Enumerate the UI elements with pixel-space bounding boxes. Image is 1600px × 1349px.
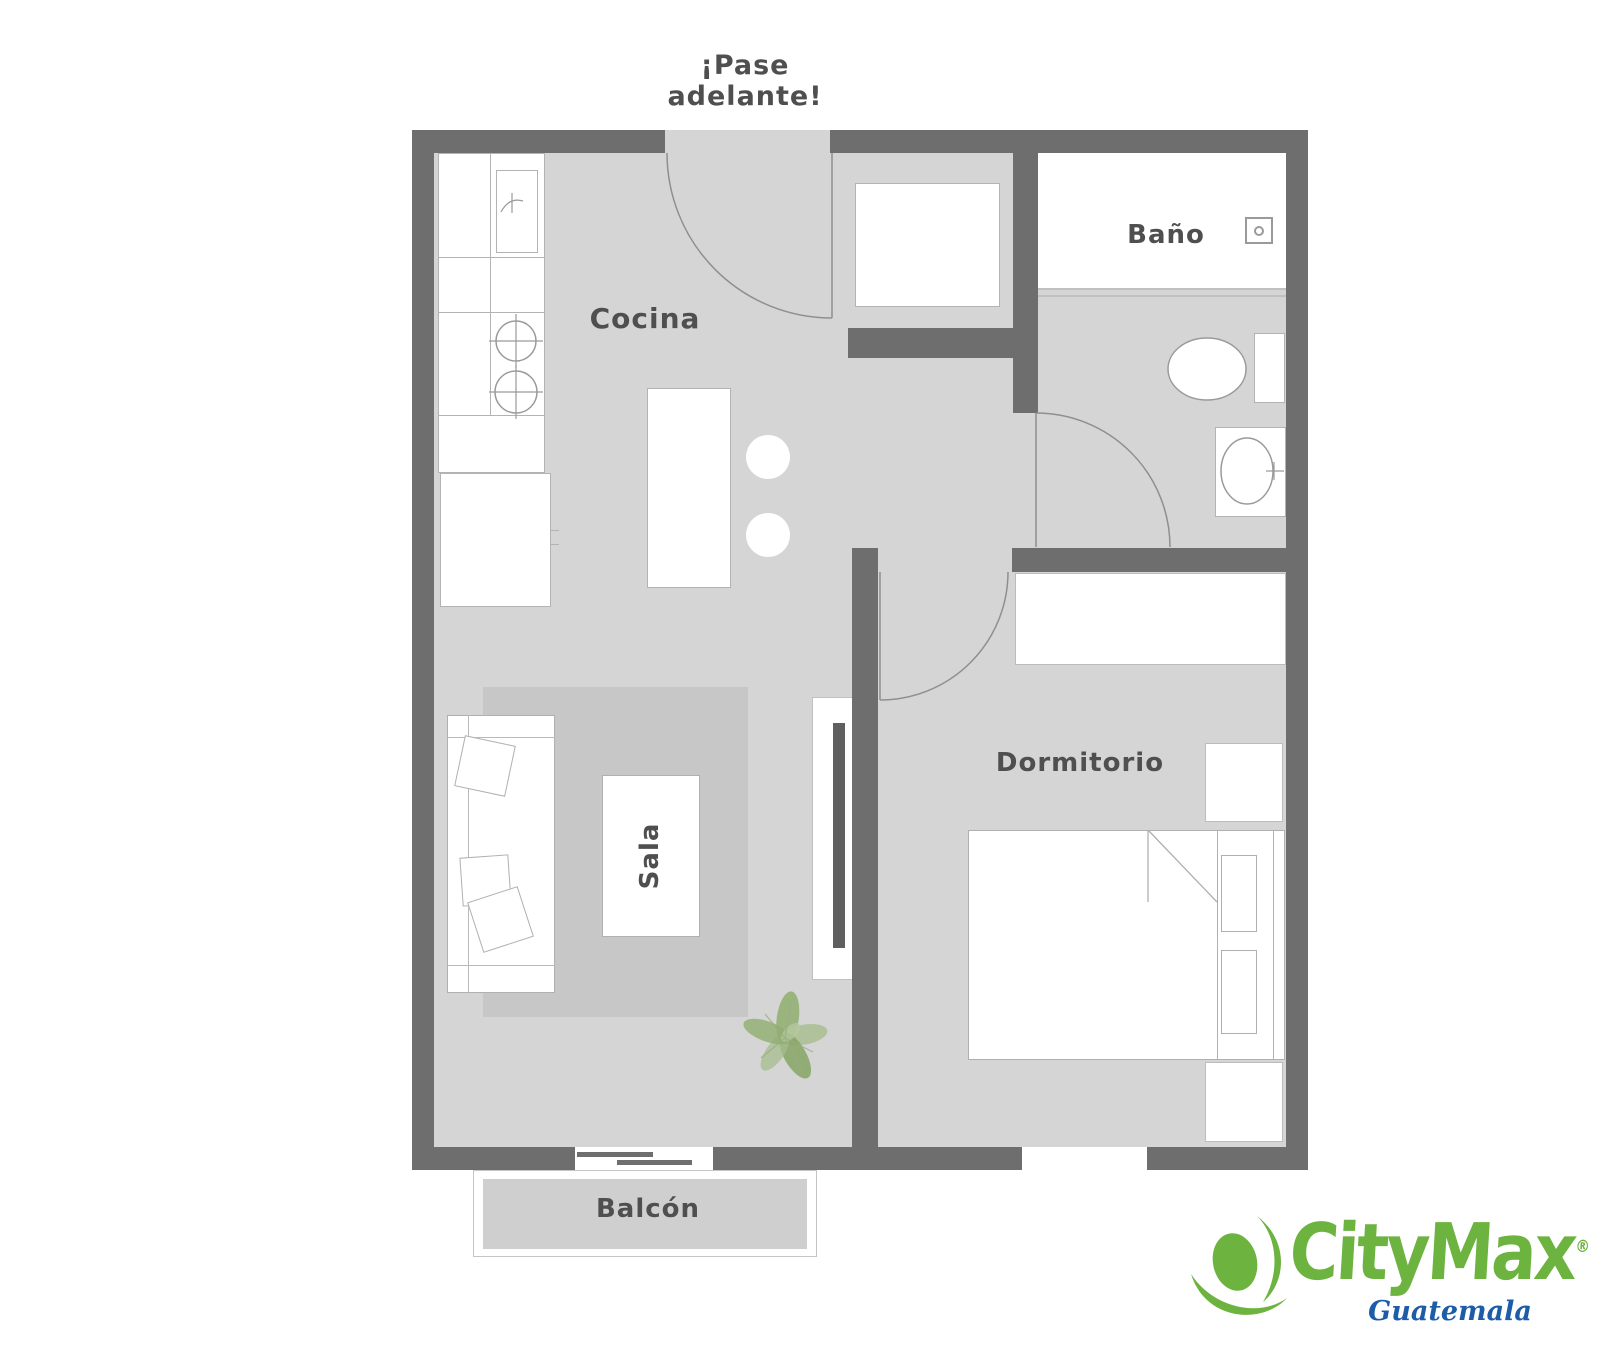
bedroom-door-arc [880,572,1008,700]
label-bathroom: Baño [1066,221,1266,251]
sink-faucet-cross [1266,462,1284,480]
entry-note: ¡Pase adelante! [645,50,845,112]
burner-cross [489,365,543,419]
citymax-logo: CityMax® Guatemala [1185,1200,1595,1340]
label-balcony: Balcón [548,1195,748,1225]
kitchen-faucet [501,193,523,213]
label-bedroom: Dormitorio [955,749,1205,779]
label-living-room: Sala [636,781,666,931]
toilet-bowl [1168,338,1246,400]
brand-region: Guatemala [1365,1296,1535,1327]
entrance-door-arc [667,153,832,318]
registered-mark: ® [1575,1237,1591,1257]
sink-basin [1221,438,1273,504]
plan-linework [0,0,1600,1349]
burner-cross [489,314,543,368]
brand-text: CityMax [1287,1208,1578,1298]
label-kitchen: Cocina [545,303,745,335]
floor-plan-page: ¡Pase adelante! Cocina Baño Dormitorio S… [0,0,1600,1349]
brand-wordmark: CityMax® [1287,1214,1592,1292]
blanket-fold-diagonal [1148,830,1217,902]
bathroom-door-arc [1036,413,1170,547]
